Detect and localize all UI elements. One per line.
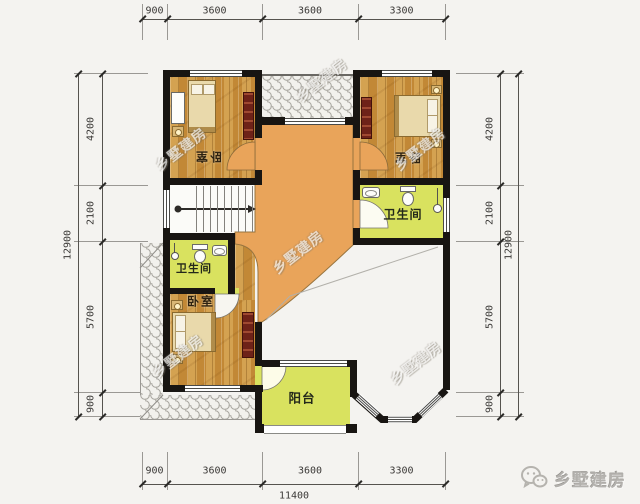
wall xyxy=(255,322,262,366)
shower-head-dot xyxy=(433,204,442,213)
window xyxy=(190,70,242,77)
wall xyxy=(228,240,235,294)
wall xyxy=(353,238,450,245)
nightstand xyxy=(171,300,183,310)
stair-treads xyxy=(196,186,255,232)
wall xyxy=(353,70,360,138)
wall xyxy=(353,170,360,200)
wall xyxy=(163,178,262,185)
washbasin xyxy=(212,245,227,256)
shower-head-dot xyxy=(171,252,179,260)
wall xyxy=(163,70,170,392)
nightstand xyxy=(431,85,442,94)
footer-logo-text: 乡墅建房 xyxy=(554,466,626,491)
wall xyxy=(255,170,262,185)
roof-hip xyxy=(140,395,163,419)
window xyxy=(382,70,432,77)
window xyxy=(443,198,450,232)
dresser xyxy=(171,92,185,124)
wardrobe xyxy=(243,92,254,140)
wall xyxy=(255,424,264,433)
window xyxy=(185,385,240,392)
door-swing-bedroom-top-left xyxy=(227,142,255,170)
floor-plan-canvas: 900 3600 3600 3300 900 3600 3600 3300 11… xyxy=(0,0,640,504)
wall xyxy=(345,117,360,125)
wall xyxy=(262,360,280,367)
shower-head xyxy=(437,188,438,205)
room-label-bathroom-right: 卫生间 xyxy=(383,206,422,223)
wall xyxy=(163,233,235,240)
wall xyxy=(350,360,357,397)
bed xyxy=(188,80,216,133)
wardrobe xyxy=(242,312,254,358)
wall xyxy=(353,178,450,185)
door-swing-balcony xyxy=(262,366,286,390)
window xyxy=(163,190,170,228)
balcony-railing xyxy=(264,425,346,434)
room-label-bathroom-left: 卫生间 xyxy=(176,260,212,276)
wechat-icon xyxy=(520,465,548,491)
wardrobe xyxy=(361,97,372,139)
room-label-balcony: 阳台 xyxy=(288,388,315,407)
roof-hip xyxy=(140,243,163,268)
door-swing-bedroom-top-right xyxy=(360,142,388,170)
room-label-bedroom-bottom-left: 卧室 xyxy=(187,293,215,310)
wall xyxy=(255,117,285,125)
toilet-bowl xyxy=(402,192,414,206)
wall xyxy=(255,70,262,138)
washbasin xyxy=(362,187,380,198)
footer-logo: 乡墅建房 xyxy=(520,464,630,492)
door-swing-bathroom-left xyxy=(215,294,239,318)
wall xyxy=(346,424,357,433)
window xyxy=(285,118,345,125)
stair-landing-line xyxy=(196,186,197,232)
room-label-bedroom-top-left: 卧室 xyxy=(194,149,222,166)
window xyxy=(280,360,347,367)
